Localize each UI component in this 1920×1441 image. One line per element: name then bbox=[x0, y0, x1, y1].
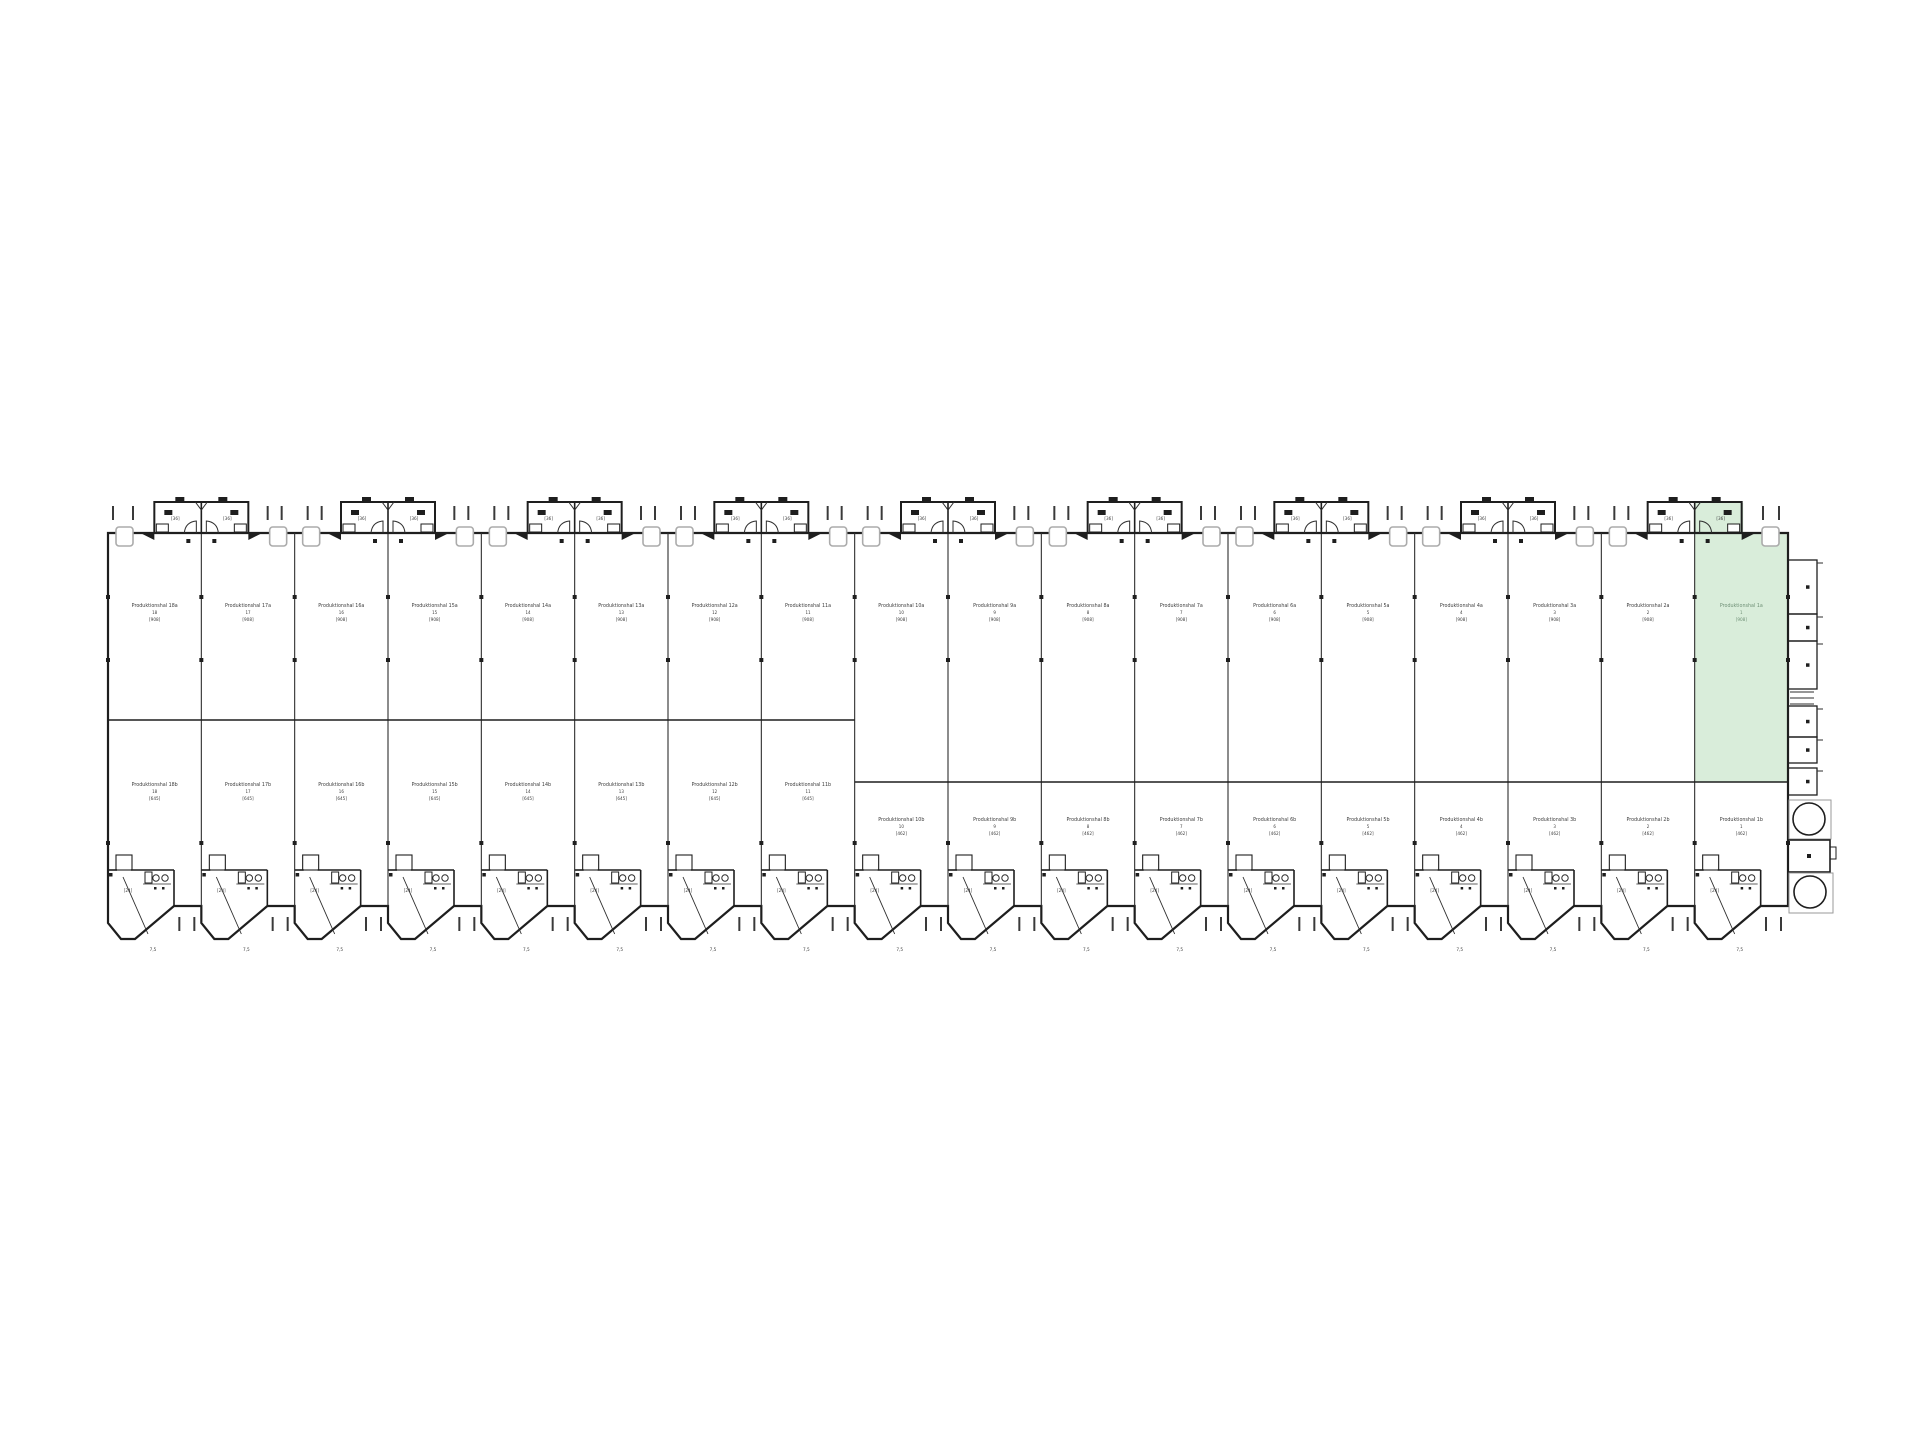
bay-fixture-wc bbox=[619, 875, 625, 881]
unit-label-top-name: Produktionshal 11a bbox=[785, 603, 831, 609]
bay-dot bbox=[162, 887, 165, 890]
unit-hall-top-2[interactable] bbox=[1601, 533, 1694, 782]
column-dot bbox=[1493, 539, 1497, 543]
unit-label-bottom-name: Produktionshal 13b bbox=[598, 782, 644, 788]
bay-dot bbox=[1274, 887, 1277, 890]
unit-hall-bottom-13[interactable] bbox=[575, 720, 668, 870]
bay-dot bbox=[154, 887, 157, 890]
module-vent-stub bbox=[1152, 497, 1161, 502]
unit-label-bottom-no: 13 bbox=[619, 789, 625, 794]
unit-label-top-area: [908] bbox=[336, 617, 348, 622]
module-counter bbox=[1354, 524, 1366, 532]
module-door-arc bbox=[931, 521, 943, 533]
bay-fixture-wc bbox=[993, 875, 999, 881]
column-dot bbox=[1120, 539, 1124, 543]
module-counter bbox=[421, 524, 433, 532]
unit-label-bottom-name: Produktionshal 9b bbox=[973, 817, 1016, 823]
column-dot bbox=[373, 539, 377, 543]
dock-canopy bbox=[1576, 527, 1593, 546]
bay-area-label: [24] bbox=[1057, 888, 1066, 893]
bay-annotation-line bbox=[963, 877, 988, 934]
bay-annotation-line bbox=[403, 877, 428, 934]
bay-area-label: [24] bbox=[1337, 888, 1346, 893]
bay-annotation-line bbox=[870, 877, 895, 934]
unit-hall-top-1[interactable] bbox=[1695, 533, 1788, 782]
bay-annotation-line bbox=[683, 877, 708, 934]
bay-fixture-wc bbox=[628, 875, 634, 881]
unit-hall-bottom-18[interactable] bbox=[108, 720, 201, 870]
module-counter bbox=[716, 524, 728, 532]
bay-fixture-wc bbox=[339, 875, 345, 881]
unit-label-top-area: [908] bbox=[709, 617, 721, 622]
bay-fixture-wc bbox=[806, 875, 812, 881]
bay-tip-label: 7,5 bbox=[1083, 947, 1090, 952]
unit-label-top-area: [908] bbox=[429, 617, 441, 622]
bay-fixture-wc bbox=[1459, 875, 1465, 881]
bay-annotation-line bbox=[1710, 877, 1735, 934]
unit-label-bottom-name: Produktionshal 3b bbox=[1533, 817, 1576, 823]
module-vent-stub bbox=[922, 497, 931, 502]
bay-dot bbox=[1095, 887, 1098, 890]
bay-dot bbox=[994, 887, 997, 890]
module-room-label: [36] bbox=[410, 516, 419, 521]
module-desk bbox=[538, 510, 546, 515]
unit-label-bottom-name: Produktionshal 6b bbox=[1253, 817, 1296, 823]
bay-fixture-wc bbox=[535, 875, 541, 881]
column-dot bbox=[669, 873, 673, 877]
module-counter bbox=[1463, 524, 1475, 532]
unit-label-bottom-no: 14 bbox=[525, 789, 531, 794]
bay-area-label: [24] bbox=[777, 888, 786, 893]
unit-label-bottom-no: 15 bbox=[432, 789, 438, 794]
unit-label-top-name: Produktionshal 7a bbox=[1160, 603, 1203, 609]
unit-hall-bottom-15[interactable] bbox=[388, 720, 481, 870]
dock-canopy bbox=[643, 527, 660, 546]
module-room-label: [36] bbox=[1104, 516, 1113, 521]
bay-dot bbox=[1554, 887, 1557, 890]
floor-plan-canvas: [36][36][36][36][36][36][36][36][36][36]… bbox=[0, 0, 1920, 1441]
unit-label-bottom-area: [462] bbox=[1176, 831, 1188, 836]
column-dot bbox=[202, 873, 206, 877]
dock-canopy bbox=[863, 527, 880, 546]
bay-annotation-line bbox=[1430, 877, 1455, 934]
module-vent-stub bbox=[1525, 497, 1534, 502]
unit-label-top-area: [908] bbox=[1269, 617, 1281, 622]
module-door-arc bbox=[1326, 521, 1338, 533]
column-dot bbox=[772, 539, 776, 543]
module-door-arc bbox=[393, 521, 405, 533]
unit-label-top-area: [908] bbox=[1082, 617, 1094, 622]
unit-hall-bottom-12[interactable] bbox=[668, 720, 761, 870]
module-vent-stub bbox=[1338, 497, 1347, 502]
module-counter bbox=[1168, 524, 1180, 532]
module-counter bbox=[903, 524, 915, 532]
bay-area-label: [24] bbox=[310, 888, 319, 893]
module-vent-stub bbox=[778, 497, 787, 502]
bay-dot bbox=[1741, 887, 1744, 890]
bay-fixture-sink bbox=[1172, 872, 1179, 883]
unit-label-top-name: Produktionshal 16a bbox=[318, 603, 364, 609]
unit-label-top-name: Produktionshal 5a bbox=[1347, 603, 1390, 609]
annex-room bbox=[1788, 641, 1817, 689]
module-counter bbox=[794, 524, 806, 532]
unit-label-bottom-no: 2 bbox=[1647, 824, 1650, 829]
bay-annotation-line bbox=[1243, 877, 1268, 934]
bay-tip-label: 7,5 bbox=[896, 947, 903, 952]
module-door-arc bbox=[558, 521, 570, 533]
unit-hall-top-11[interactable] bbox=[761, 533, 854, 720]
bay-area-label: [24] bbox=[1150, 888, 1159, 893]
bay-annotation-line bbox=[590, 877, 615, 934]
unit-label-bottom-name: Produktionshal 4b bbox=[1440, 817, 1483, 823]
bay-tip-label: 7,5 bbox=[1176, 947, 1183, 952]
bay-dot bbox=[1087, 887, 1090, 890]
unit-label-bottom-name: Produktionshal 2b bbox=[1626, 817, 1669, 823]
column-dot bbox=[1229, 873, 1233, 877]
bay-fixture-sink bbox=[1545, 872, 1552, 883]
unit-label-top-name: Produktionshal 9a bbox=[973, 603, 1016, 609]
bay-area-label: [24] bbox=[217, 888, 226, 893]
bay-tip-label: 7,5 bbox=[523, 947, 530, 952]
unit-label-bottom-name: Produktionshal 16b bbox=[318, 782, 364, 788]
unit-label-top-no: 6 bbox=[1273, 610, 1276, 615]
module-vent-stub bbox=[1295, 497, 1304, 502]
bay-fixture-wc bbox=[1086, 875, 1092, 881]
bay-fixture-wc bbox=[815, 875, 821, 881]
unit-label-bottom-area: [462] bbox=[1456, 831, 1468, 836]
column-dot bbox=[586, 539, 590, 543]
bay-annotation-line bbox=[310, 877, 335, 934]
unit-label-bottom-name: Produktionshal 10b bbox=[878, 817, 924, 823]
unit-hall-top-8[interactable] bbox=[1041, 533, 1134, 782]
bay-annotation-line bbox=[1336, 877, 1361, 934]
bay-fixture-sink bbox=[1358, 872, 1365, 883]
unit-label-bottom-area: [645] bbox=[802, 796, 814, 801]
bay-area-label: [24] bbox=[1617, 888, 1626, 893]
unit-label-top-no: 12 bbox=[712, 610, 718, 615]
bay-fixture-sink bbox=[425, 872, 432, 883]
module-counter bbox=[343, 524, 355, 532]
module-desk bbox=[230, 510, 238, 515]
unit-label-bottom-area: [645] bbox=[242, 796, 254, 801]
bay-tip-label: 7,5 bbox=[150, 947, 157, 952]
module-desk bbox=[1658, 510, 1666, 515]
bay-fixture-wc bbox=[153, 875, 159, 881]
unit-label-top-no: 13 bbox=[619, 610, 625, 615]
bay-dot bbox=[434, 887, 437, 890]
bay-fixture-wc bbox=[722, 875, 728, 881]
bay-annotation-line bbox=[1616, 877, 1641, 934]
unit-label-top-no: 15 bbox=[432, 610, 438, 615]
dock-canopy bbox=[1423, 527, 1440, 546]
module-counter bbox=[1650, 524, 1662, 532]
bay-tip-label: 7,5 bbox=[1363, 947, 1370, 952]
unit-label-bottom-name: Produktionshal 5b bbox=[1346, 817, 1389, 823]
unit-label-top-area: [908] bbox=[896, 617, 908, 622]
unit-label-top-no: 11 bbox=[805, 610, 811, 615]
bay-fixture-wc bbox=[1562, 875, 1568, 881]
unit-label-bottom-area: [645] bbox=[709, 796, 721, 801]
annex-room bbox=[1788, 614, 1817, 641]
dock-canopy bbox=[1390, 527, 1407, 546]
unit-label-top-area: [908] bbox=[802, 617, 814, 622]
unit-hall-bottom-14[interactable] bbox=[481, 720, 574, 870]
unit-hall-top-6[interactable] bbox=[1228, 533, 1321, 782]
bay-fixture-sink bbox=[1265, 872, 1272, 883]
floor-plan: [36][36][36][36][36][36][36][36][36][36]… bbox=[0, 0, 1920, 1441]
bay-dot bbox=[901, 887, 904, 890]
unit-hall-top-5[interactable] bbox=[1321, 533, 1414, 782]
unit-hall-top-14[interactable] bbox=[481, 533, 574, 720]
bay-fixture-sink bbox=[1638, 872, 1645, 883]
dock-canopy bbox=[303, 527, 320, 546]
unit-label-bottom-name: Produktionshal 12b bbox=[692, 782, 738, 788]
column-dot bbox=[1136, 873, 1140, 877]
bay-dot bbox=[909, 887, 912, 890]
column-dot bbox=[296, 873, 300, 877]
unit-hall-top-9[interactable] bbox=[948, 533, 1041, 782]
unit-label-top-name: Produktionshal 8a bbox=[1067, 603, 1110, 609]
module-door-arc bbox=[206, 521, 218, 533]
column-dot bbox=[399, 539, 403, 543]
bay-fixture-sink bbox=[238, 872, 245, 883]
bay-tip-label: 7,5 bbox=[243, 947, 250, 952]
annex-room-dot bbox=[1807, 854, 1811, 858]
bay-dot bbox=[535, 887, 538, 890]
module-desk bbox=[1284, 510, 1292, 515]
unit-label-top-area: [908] bbox=[616, 617, 628, 622]
column-dot bbox=[1332, 539, 1336, 543]
bay-fixture-wc bbox=[908, 875, 914, 881]
dock-canopy bbox=[1762, 527, 1779, 546]
bay-fixture-wc bbox=[1002, 875, 1008, 881]
annex-room-dot bbox=[1806, 663, 1810, 667]
module-desk bbox=[164, 510, 172, 515]
bay-fixture-sink bbox=[332, 872, 339, 883]
module-counter bbox=[1541, 524, 1553, 532]
bay-dot bbox=[1002, 887, 1005, 890]
unit-hall-top-12[interactable] bbox=[668, 533, 761, 720]
column-dot bbox=[1146, 539, 1150, 543]
bay-fixture-sink bbox=[892, 872, 899, 883]
module-vent-stub bbox=[549, 497, 558, 502]
module-desk bbox=[1098, 510, 1106, 515]
module-room-label: [36] bbox=[918, 516, 927, 521]
unit-hall-bottom-17[interactable] bbox=[201, 720, 294, 870]
module-door-arc bbox=[1140, 521, 1152, 533]
unit-hall-top-16[interactable] bbox=[295, 533, 388, 720]
bay-dot bbox=[255, 887, 257, 890]
module-room-label: [36] bbox=[1156, 516, 1165, 521]
dock-canopy bbox=[270, 527, 287, 546]
bay-area-label: [24] bbox=[964, 888, 973, 893]
bay-annotation-line bbox=[216, 877, 241, 934]
module-room-label: [36] bbox=[223, 516, 232, 521]
dock-canopy bbox=[1049, 527, 1066, 546]
module-vent-stub bbox=[362, 497, 371, 502]
module-counter bbox=[156, 524, 168, 532]
unit-label-top-no: 10 bbox=[899, 610, 905, 615]
bay-dot bbox=[1367, 887, 1370, 890]
unit-label-top-area: [908] bbox=[149, 617, 161, 622]
module-vent-stub bbox=[965, 497, 974, 502]
bay-annotation-line bbox=[123, 877, 148, 934]
bay-dot bbox=[527, 887, 530, 890]
unit-label-bottom-area: [462] bbox=[1269, 831, 1281, 836]
bay-dot bbox=[1655, 887, 1658, 890]
unit-label-top-area: [908] bbox=[522, 617, 534, 622]
unit-hall-bottom-16[interactable] bbox=[295, 720, 388, 870]
bay-fixture-sink bbox=[1452, 872, 1459, 883]
column-dot bbox=[1602, 873, 1606, 877]
bay-dot bbox=[1749, 887, 1752, 890]
unit-label-top-no: 17 bbox=[245, 610, 251, 615]
bay-fixture-wc bbox=[433, 875, 439, 881]
bay-fixture-wc bbox=[1655, 875, 1661, 881]
unit-label-bottom-area: [462] bbox=[896, 831, 908, 836]
unit-label-top-name: Produktionshal 13a bbox=[598, 603, 644, 609]
module-room-label: [36] bbox=[1291, 516, 1300, 521]
column-dot bbox=[1322, 873, 1326, 877]
bay-annotation-line bbox=[1150, 877, 1175, 934]
module-desk bbox=[1724, 510, 1732, 515]
bay-dot bbox=[722, 887, 725, 890]
unit-hall-top-17[interactable] bbox=[201, 533, 294, 720]
unit-hall-top-7[interactable] bbox=[1135, 533, 1228, 782]
unit-hall-top-3[interactable] bbox=[1508, 533, 1601, 782]
bay-fixture-wc bbox=[1748, 875, 1754, 881]
module-room-label: [36] bbox=[544, 516, 553, 521]
unit-label-top-no: 8 bbox=[1087, 610, 1090, 615]
unit-label-bottom-no: 12 bbox=[712, 789, 718, 794]
unit-label-top-area: [908] bbox=[1362, 617, 1374, 622]
unit-hall-top-13[interactable] bbox=[575, 533, 668, 720]
unit-label-bottom-area: [462] bbox=[1549, 831, 1561, 836]
module-door-arc bbox=[1304, 521, 1316, 533]
unit-hall-bottom-11[interactable] bbox=[761, 720, 854, 870]
module-desk bbox=[790, 510, 798, 515]
bay-fixture-wc bbox=[1366, 875, 1372, 881]
bay-annotation-line bbox=[1523, 877, 1548, 934]
module-door-arc bbox=[1491, 521, 1503, 533]
bay-fixture-wc bbox=[442, 875, 448, 881]
bay-fixture-wc bbox=[1179, 875, 1185, 881]
bay-fixture-wc bbox=[1739, 875, 1745, 881]
bay-area-label: [24] bbox=[1710, 888, 1719, 893]
unit-label-top-no: 14 bbox=[525, 610, 531, 615]
bay-dot bbox=[714, 887, 717, 890]
annex-room-dot bbox=[1806, 626, 1810, 630]
module-door-arc bbox=[184, 521, 196, 533]
module-desk bbox=[911, 510, 919, 515]
unit-label-top-no: 9 bbox=[993, 610, 996, 615]
bay-fixture-wc bbox=[162, 875, 168, 881]
annex-room-dot bbox=[1806, 748, 1810, 752]
bay-dot bbox=[1647, 887, 1650, 890]
column-dot bbox=[1416, 873, 1420, 877]
module-vent-stub bbox=[1669, 497, 1678, 502]
unit-label-bottom-no: 17 bbox=[245, 789, 251, 794]
bay-dot bbox=[621, 887, 624, 890]
module-desk bbox=[1164, 510, 1172, 515]
module-desk bbox=[351, 510, 359, 515]
unit-label-top-no: 18 bbox=[152, 610, 158, 615]
module-vent-stub bbox=[1482, 497, 1491, 502]
unit-hall-top-10[interactable] bbox=[855, 533, 948, 782]
module-desk bbox=[1537, 510, 1545, 515]
module-counter bbox=[1090, 524, 1102, 532]
bay-tip-label: 7,5 bbox=[430, 947, 437, 952]
bay-tip-label: 7,5 bbox=[710, 947, 717, 952]
annex-room-dot bbox=[1806, 780, 1810, 784]
unit-hall-top-18[interactable] bbox=[108, 533, 201, 720]
column-dot bbox=[109, 873, 113, 877]
column-dot bbox=[1696, 873, 1700, 877]
unit-hall-top-15[interactable] bbox=[388, 533, 481, 720]
module-room-label: [36] bbox=[783, 516, 792, 521]
bay-fixture-wc bbox=[348, 875, 354, 881]
module-vent-stub bbox=[1712, 497, 1721, 502]
column-dot bbox=[1509, 873, 1513, 877]
module-door-arc bbox=[766, 521, 778, 533]
bay-tip-label: 7,5 bbox=[1456, 947, 1463, 952]
unit-label-bottom-name: Produktionshal 8b bbox=[1066, 817, 1109, 823]
bay-fixture-wc bbox=[255, 875, 261, 881]
bay-dot bbox=[1181, 887, 1184, 890]
dock-canopy bbox=[1016, 527, 1033, 546]
bay-fixture-wc bbox=[713, 875, 719, 881]
column-dot bbox=[933, 539, 937, 543]
bay-fixture-sink bbox=[1732, 872, 1739, 883]
bay-dot bbox=[1461, 887, 1464, 890]
unit-label-bottom-area: [645] bbox=[616, 796, 628, 801]
dock-canopy bbox=[1203, 527, 1220, 546]
unit-label-top-no: 2 bbox=[1647, 610, 1650, 615]
bay-fixture-wc bbox=[899, 875, 905, 881]
bay-area-label: [24] bbox=[1244, 888, 1253, 893]
bay-dot bbox=[1375, 887, 1378, 890]
bay-dot bbox=[629, 887, 632, 890]
unit-label-top-area: [908] bbox=[1642, 617, 1654, 622]
unit-label-top-no: 5 bbox=[1367, 610, 1370, 615]
module-door-arc bbox=[1118, 521, 1130, 533]
bay-dot bbox=[807, 887, 810, 890]
module-desk bbox=[417, 510, 425, 515]
unit-label-top-name: Produktionshal 15a bbox=[412, 603, 458, 609]
bay-area-label: [24] bbox=[497, 888, 506, 893]
module-counter bbox=[1728, 524, 1740, 532]
bay-fixture-wc bbox=[1375, 875, 1381, 881]
module-counter bbox=[1276, 524, 1288, 532]
annex-room bbox=[1788, 560, 1817, 614]
bay-area-label: [24] bbox=[590, 888, 599, 893]
unit-label-bottom-name: Produktionshal 1b bbox=[1720, 817, 1763, 823]
bay-area-label: [24] bbox=[684, 888, 693, 893]
dock-canopy bbox=[489, 527, 506, 546]
bay-tip-label: 7,5 bbox=[1736, 947, 1743, 952]
column-dot bbox=[1706, 539, 1710, 543]
unit-hall-top-4[interactable] bbox=[1415, 533, 1508, 782]
unit-label-top-name: Produktionshal 1a bbox=[1720, 603, 1763, 609]
bay-annotation-line bbox=[496, 877, 521, 934]
bay-tip-label: 7,5 bbox=[990, 947, 997, 952]
bay-fixture-wc bbox=[1273, 875, 1279, 881]
unit-label-bottom-no: 18 bbox=[152, 789, 158, 794]
module-vent-stub bbox=[175, 497, 184, 502]
dock-canopy bbox=[116, 527, 133, 546]
module-room-label: [36] bbox=[1478, 516, 1487, 521]
unit-label-top-area: [908] bbox=[242, 617, 254, 622]
